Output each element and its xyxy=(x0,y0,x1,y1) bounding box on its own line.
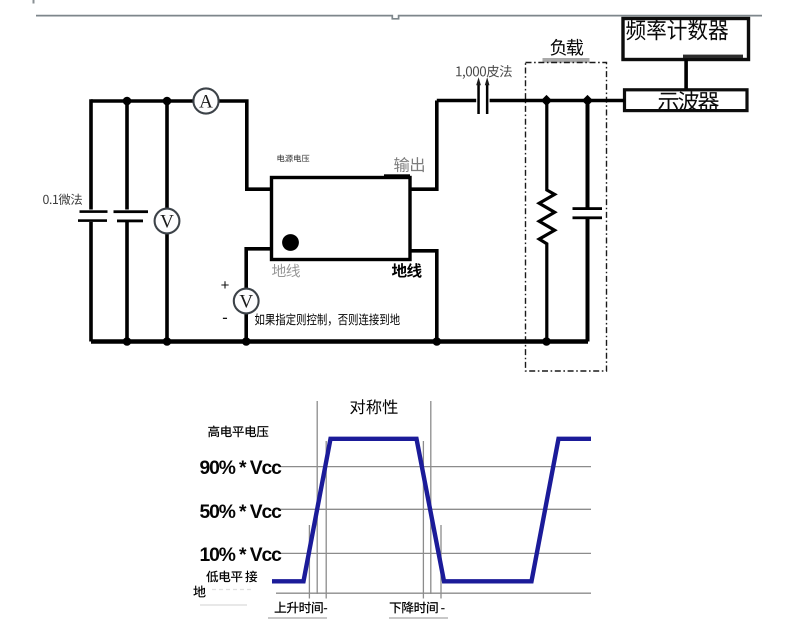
svg-text:+: + xyxy=(221,277,230,294)
svg-text:50% * Vcc: 50% * Vcc xyxy=(200,502,283,523)
svg-text:V: V xyxy=(239,291,253,312)
svg-text:V: V xyxy=(160,211,174,232)
svg-text:-: - xyxy=(222,308,228,327)
svg-text:A: A xyxy=(199,91,213,112)
svg-text:10% * Vcc: 10% * Vcc xyxy=(200,545,283,566)
svg-text:90% * Vcc: 90% * Vcc xyxy=(200,458,283,479)
